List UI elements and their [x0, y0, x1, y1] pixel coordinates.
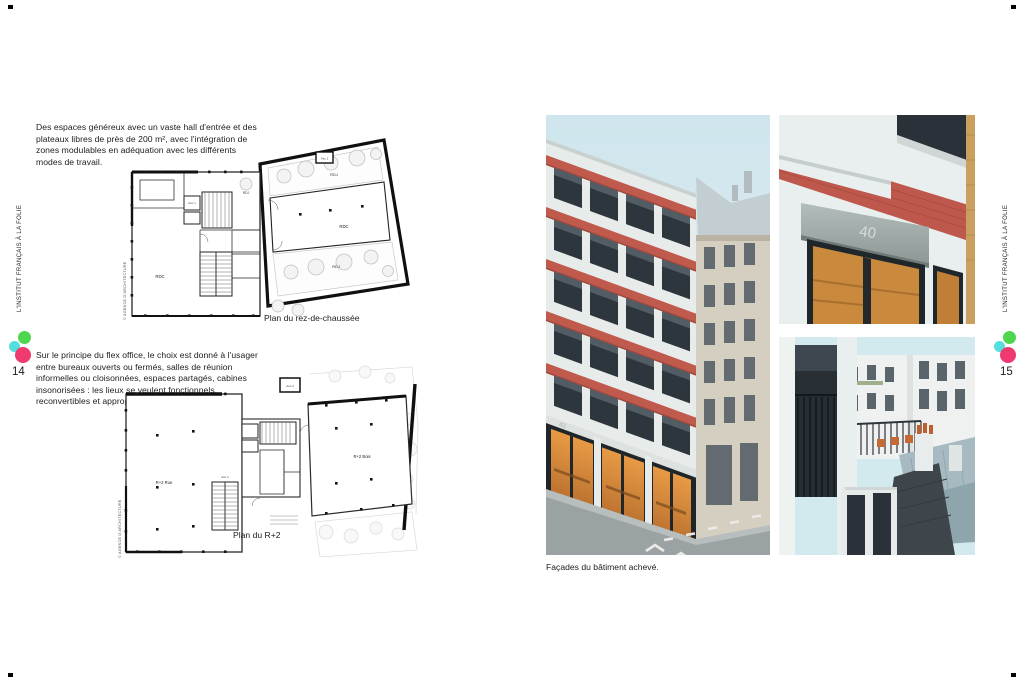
page-right: 42	[512, 0, 1024, 682]
photos-caption: Façades du bâtiment achevé.	[546, 562, 659, 572]
plan-r2-caption: Plan du R+2	[233, 530, 281, 540]
old-brick-neighbour	[966, 115, 975, 324]
room-label-asc1-r2: Asc 1	[221, 475, 229, 479]
plan-ground-caption: Plan du rez-de-chaussée	[264, 313, 360, 323]
photo-street-facade: 42	[546, 115, 770, 555]
stair-core-2	[200, 252, 232, 296]
side-window	[933, 265, 963, 324]
logo-dot-green	[1003, 331, 1016, 344]
photo-courtyard-svg	[779, 337, 975, 555]
photo-courtyard	[779, 337, 975, 555]
neighbour-building	[696, 235, 770, 555]
margin-title-right: L'INSTITUT FRANÇAIS À LA FOLIE	[1003, 205, 1009, 312]
page-number-left: 14	[12, 366, 25, 378]
room-label-rdc-main: RDC	[339, 224, 348, 229]
photo-entrance-svg: 40	[779, 115, 975, 324]
plan-garden-bottom: RDJ	[272, 242, 398, 316]
room-label-r2-bois: R+2 Bois	[353, 454, 370, 459]
page-left: L'INSTITUT FRANÇAIS À LA FOLIE 14 Des es…	[0, 0, 512, 682]
logo-dot-pink	[15, 347, 31, 363]
wing-asc-box: Asc 2	[316, 152, 333, 163]
logo-dot-green	[18, 331, 31, 344]
room-label-rdj-bottom: RDJ	[332, 264, 340, 269]
plan2-stair-core: Asc 1	[212, 475, 238, 530]
plan-ground-credit: © AGENCE D'ARCHITECTURE	[123, 261, 127, 320]
room-label-asc1: Asc 1	[188, 201, 196, 205]
photo-entrance: 40	[779, 115, 975, 324]
plan-r2-credit: © AGENCE D'ARCHITECTURE	[118, 499, 122, 558]
elevator-box: Asc 1	[184, 196, 200, 224]
room-label-asc2-r2: Asc 2	[286, 384, 294, 388]
room-label-rdj-left: RDJ	[243, 191, 250, 195]
logo-dot-pink	[1000, 347, 1016, 363]
photo-street-facade-svg: 42	[546, 115, 770, 555]
street-number-40: 40	[858, 223, 877, 242]
page-number-right: 15	[1000, 366, 1013, 378]
room-label-asc2: Asc 2	[321, 157, 329, 161]
plan2-garden-wing: R+2 Bois	[308, 396, 412, 516]
margin-title-left: L'INSTITUT FRANÇAIS À LA FOLIE	[17, 205, 23, 312]
room-label-r2-rue: R+2 Rue	[156, 480, 173, 485]
book-spread: L'INSTITUT FRANÇAIS À LA FOLIE 14 Des es…	[0, 0, 1024, 682]
plan-left-block: Asc 1 RDC RDJ	[131, 171, 260, 317]
logo-dots-left	[9, 331, 37, 367]
room-label-rdj-top: RDJ	[330, 172, 338, 177]
stair-core	[202, 192, 232, 228]
plan2-core-stair	[260, 422, 296, 444]
room-label-rdc-left: RDC	[155, 274, 164, 279]
plan2-core: Asc 2	[242, 378, 309, 524]
main-building: 42	[546, 139, 696, 555]
floor-plan-ground-svg: RDJ RDC RDJ	[126, 134, 426, 324]
plan2-street-wing: R+2 Rue Asc 1	[125, 393, 242, 553]
floor-plan-ground: RDJ RDC RDJ	[126, 134, 426, 324]
logo-dots-right	[994, 331, 1022, 367]
